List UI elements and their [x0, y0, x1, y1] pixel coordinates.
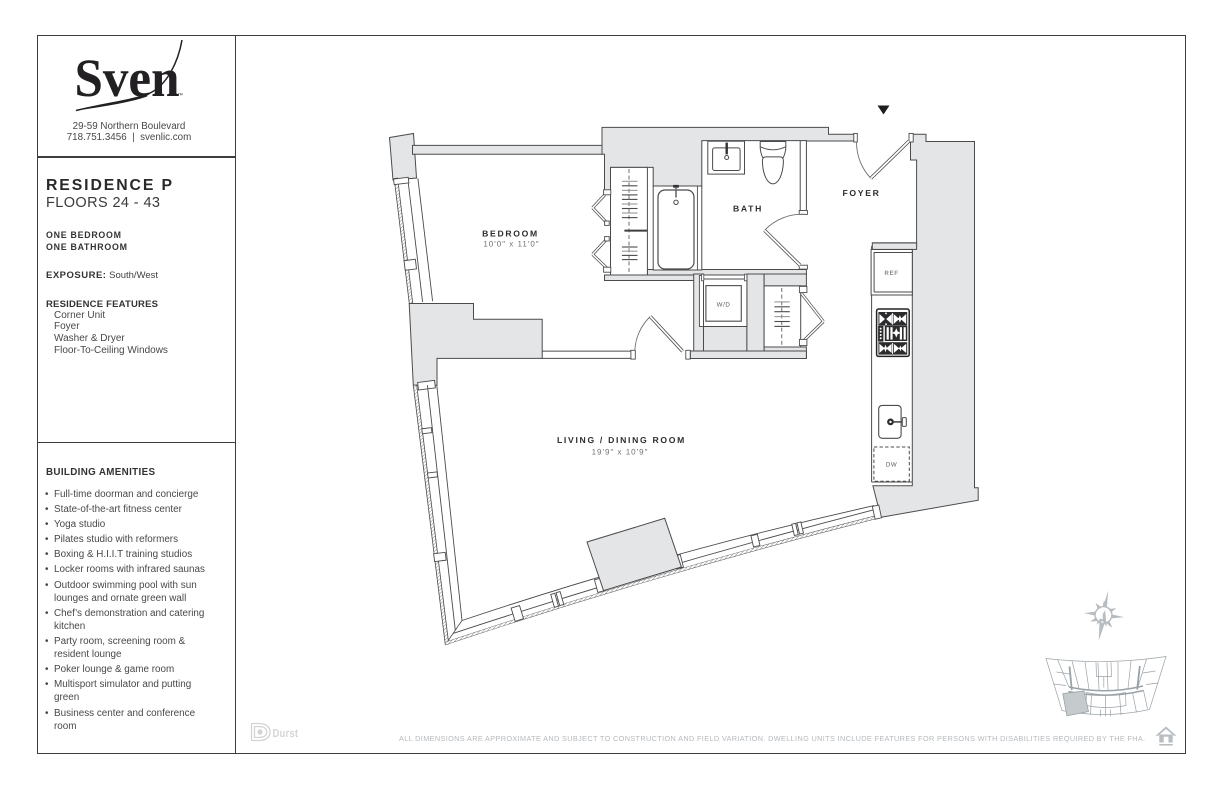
svg-text:Durst: Durst [273, 727, 299, 740]
svg-text:LIVING / DINING ROOM: LIVING / DINING ROOM [557, 435, 686, 445]
svg-text:DW: DW [886, 462, 898, 469]
svg-text:REF: REF [884, 270, 898, 277]
svg-text:FOYER: FOYER [842, 188, 880, 198]
svg-text:BATH: BATH [733, 204, 763, 214]
svg-text:W/D: W/D [717, 302, 731, 309]
svg-text:10'0" x 11'0": 10'0" x 11'0" [483, 240, 539, 249]
svg-text:19'9" x 10'9": 19'9" x 10'9" [592, 448, 649, 457]
svg-text:BEDROOM: BEDROOM [482, 229, 539, 239]
